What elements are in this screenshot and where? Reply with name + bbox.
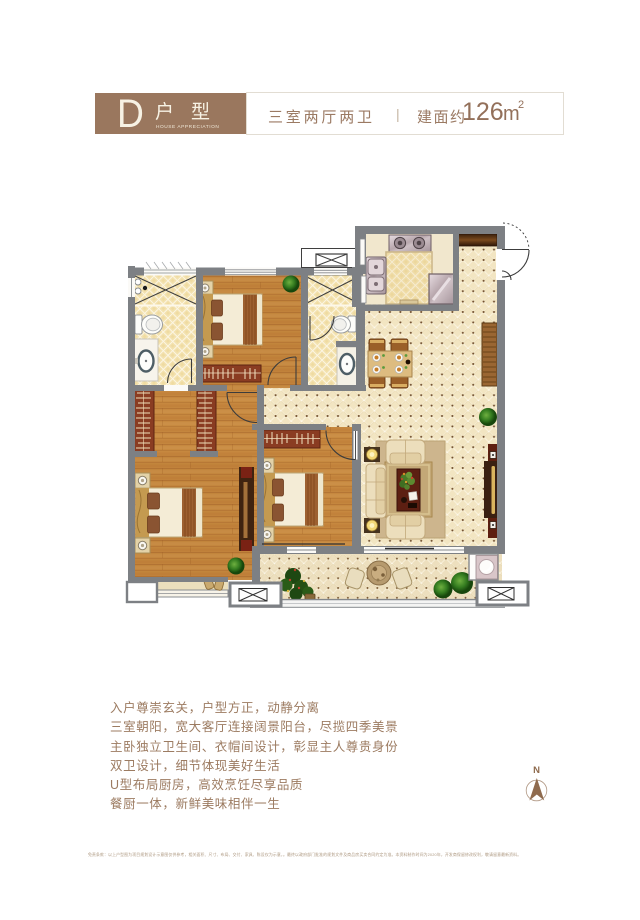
svg-text:N: N — [533, 765, 540, 776]
